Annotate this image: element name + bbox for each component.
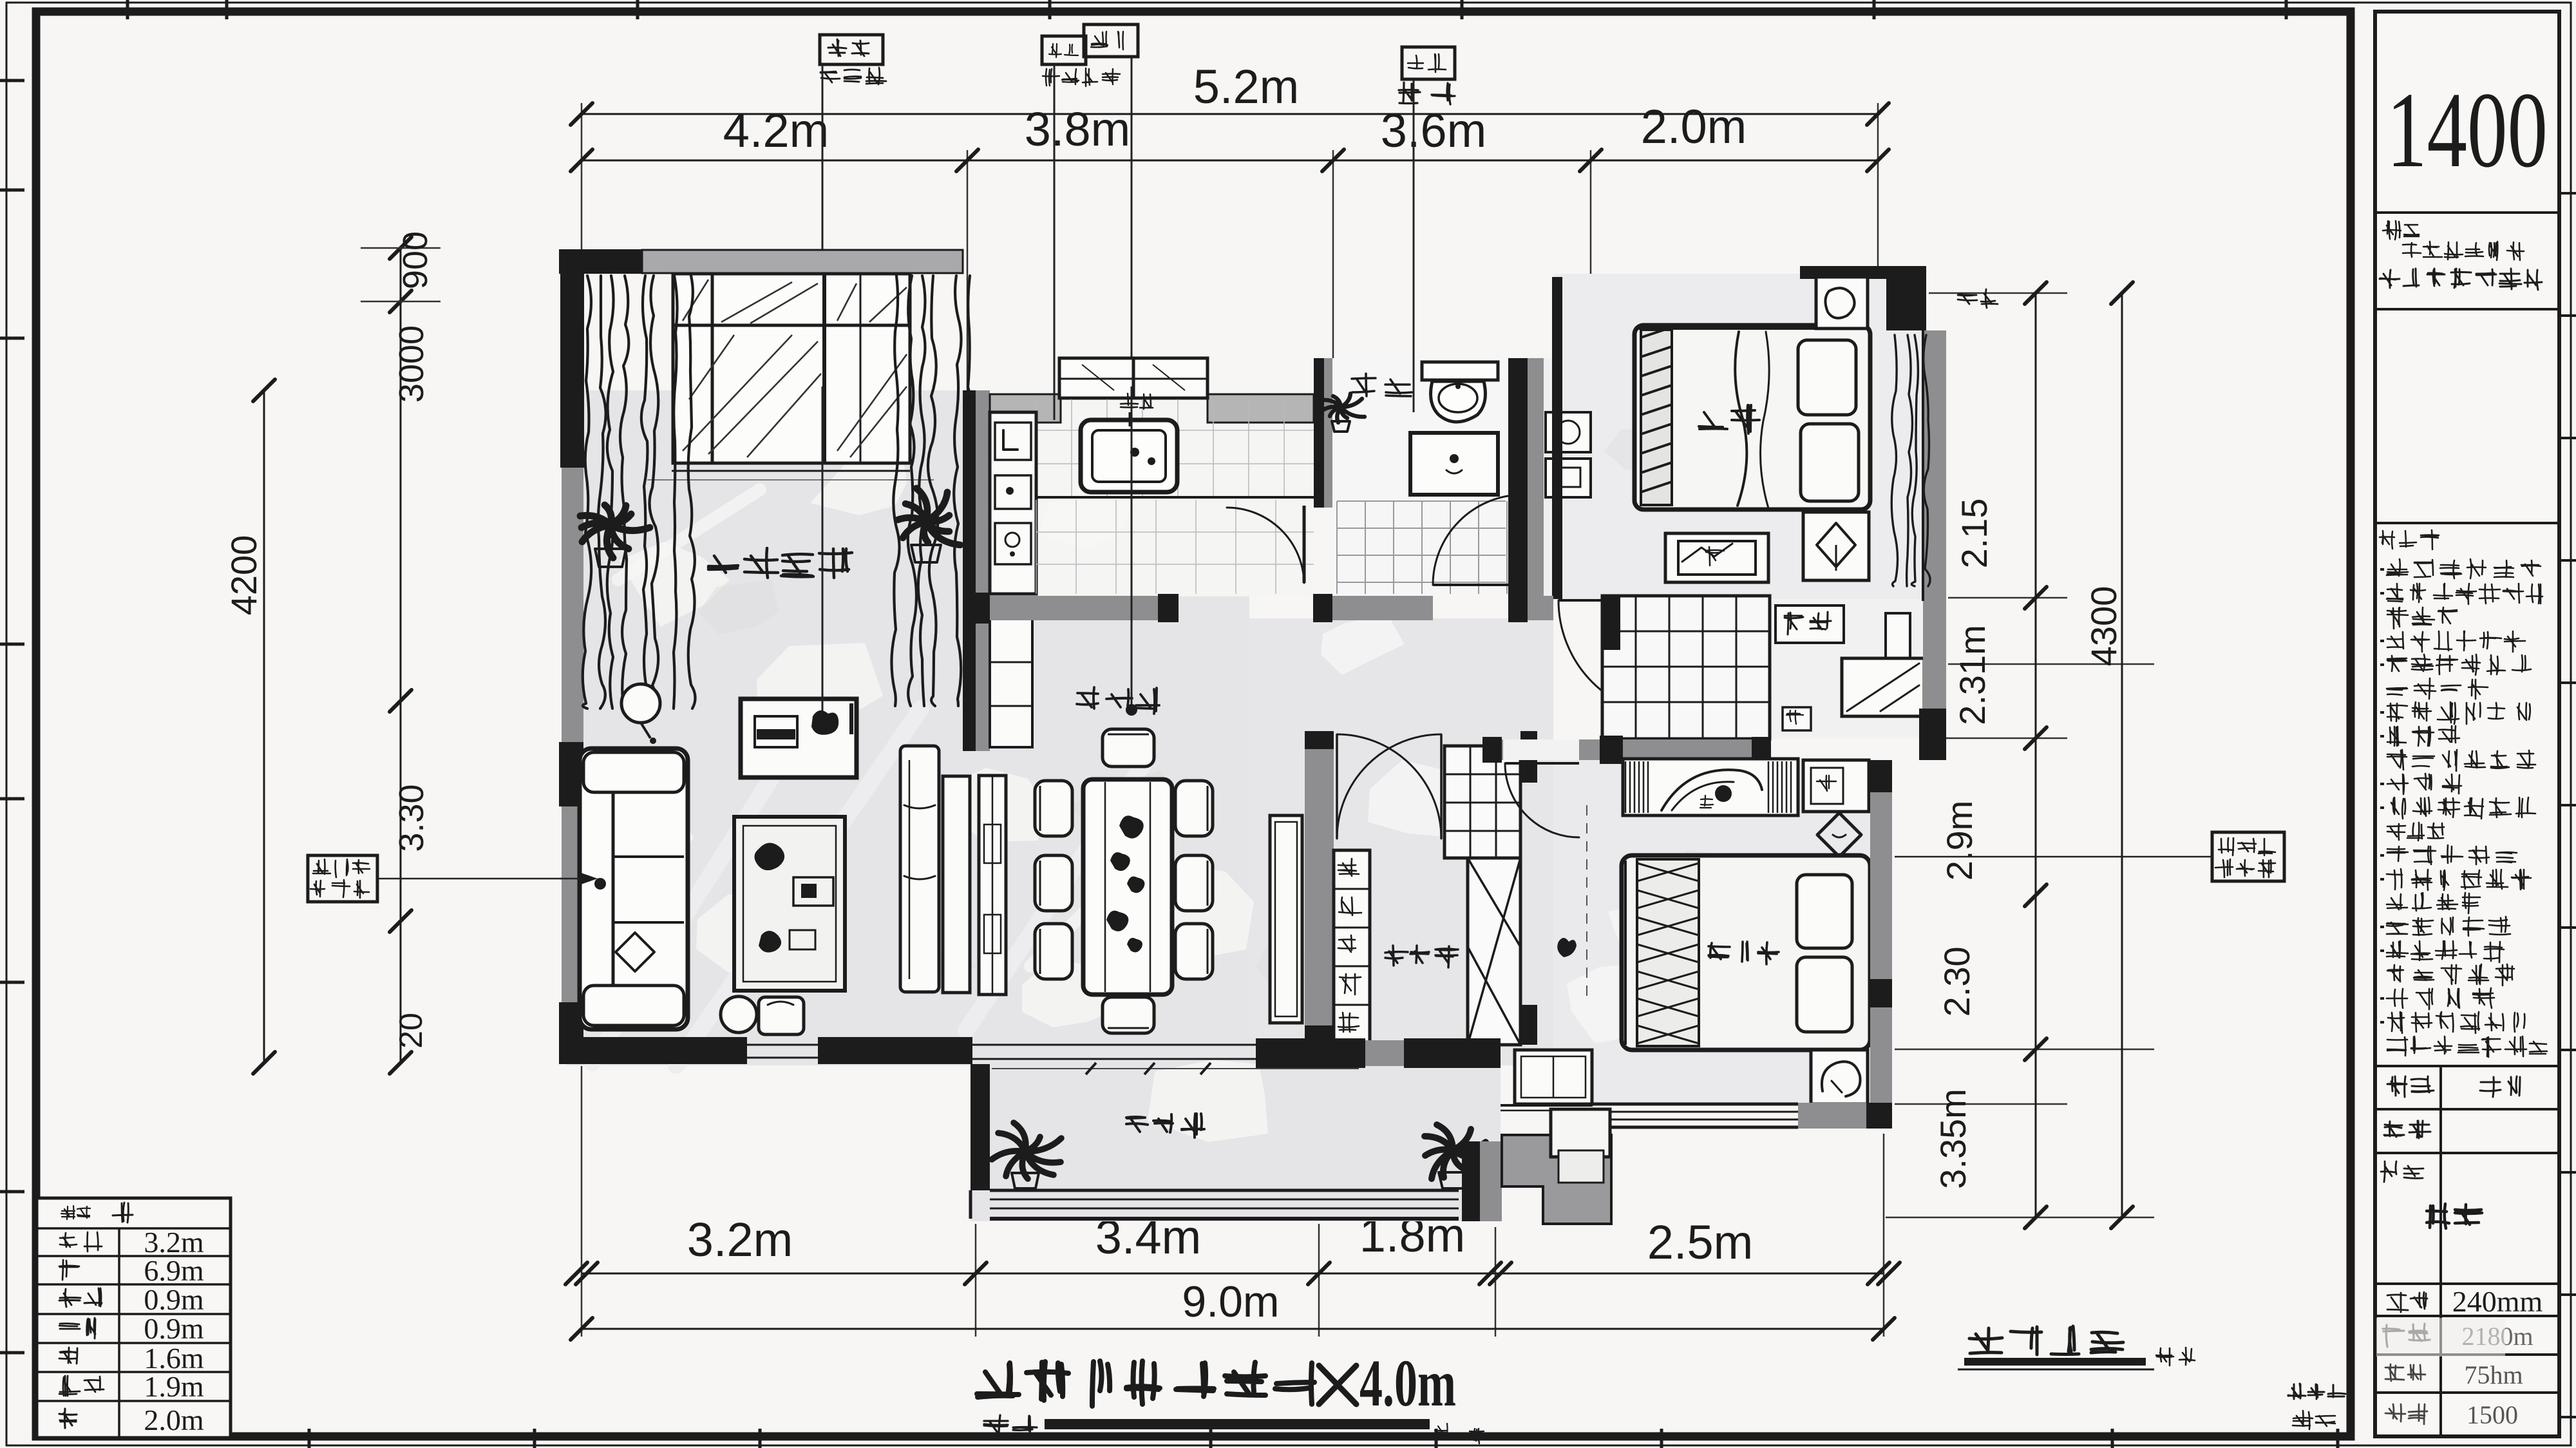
svg-text:3.35m: 3.35m — [1933, 1089, 1973, 1189]
svg-text:20: 20 — [393, 1013, 429, 1049]
svg-text:4300: 4300 — [2083, 586, 2124, 667]
svg-text:3000: 3000 — [392, 325, 431, 403]
svg-text:240mm: 240mm — [2452, 1285, 2543, 1318]
svg-text:2.30: 2.30 — [1937, 947, 1977, 1017]
svg-text:3.6m: 3.6m — [1381, 104, 1487, 157]
svg-text:3.8m: 3.8m — [1025, 102, 1131, 156]
svg-text:1500: 1500 — [2467, 1400, 2518, 1429]
svg-text:2.5m: 2.5m — [1647, 1215, 1754, 1269]
svg-text:1400: 1400 — [2387, 70, 2548, 190]
svg-text:4200: 4200 — [223, 535, 264, 616]
svg-text:3.30: 3.30 — [392, 784, 431, 852]
svg-text:1.9m: 1.9m — [144, 1370, 204, 1403]
svg-text:5.2m: 5.2m — [1193, 60, 1300, 113]
svg-text:2.31m: 2.31m — [1952, 625, 1993, 725]
svg-text:4.2m: 4.2m — [723, 104, 829, 157]
svg-text:900: 900 — [396, 231, 435, 289]
svg-text:4.0m: 4.0m — [1359, 1346, 1456, 1420]
svg-text:75hm: 75hm — [2464, 1360, 2523, 1389]
svg-text:6.9m: 6.9m — [144, 1254, 204, 1287]
svg-text:2.0m: 2.0m — [144, 1404, 204, 1436]
svg-text:2.9m: 2.9m — [1939, 801, 1980, 881]
svg-text:3.2m: 3.2m — [687, 1213, 793, 1266]
svg-text:0.9m: 0.9m — [144, 1312, 204, 1345]
svg-text:0.9m: 0.9m — [144, 1283, 204, 1316]
svg-text:2.15: 2.15 — [1954, 499, 1994, 569]
svg-text:2.0m: 2.0m — [1641, 100, 1747, 153]
svg-text:9.0m: 9.0m — [1182, 1277, 1279, 1326]
